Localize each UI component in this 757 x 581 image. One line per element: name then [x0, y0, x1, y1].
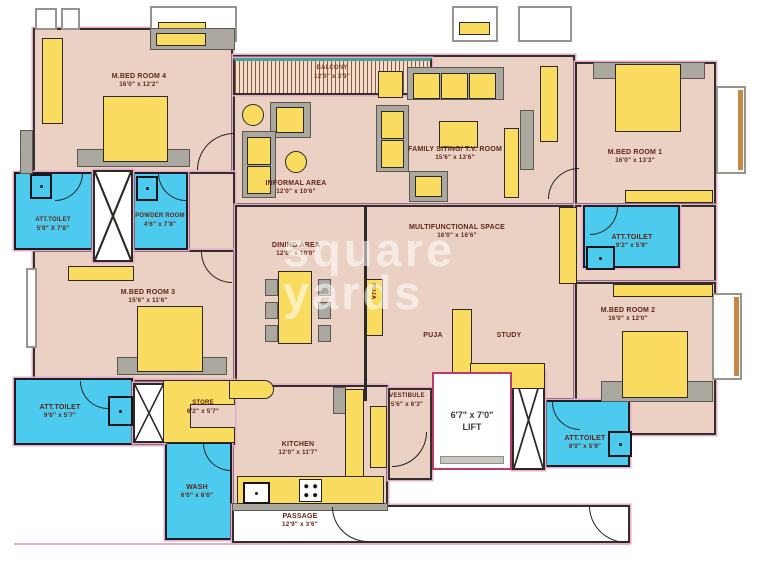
- lift-sill: [440, 456, 504, 464]
- corridor-wardrobe-b: [504, 128, 519, 198]
- dining-chair: [265, 279, 278, 296]
- family-sofa-seat: [441, 73, 468, 99]
- label-puja: PUJA: [413, 331, 453, 340]
- label-att-toilet-topleft: ATT.TOILET5'9" X 7'8": [13, 217, 93, 233]
- bed1-bed: [615, 64, 681, 132]
- label-att-toilet-bottomleft: ATT.TOILET9'6" x 5'7": [20, 403, 100, 420]
- dining-chair: [318, 279, 331, 296]
- bed3-bed: [137, 306, 203, 372]
- label-wash: WASH6'0" x 8'6": [157, 483, 237, 500]
- family-sofa-seat: [469, 73, 496, 99]
- label-att-toilet-right: ATT.TOILET9'2" x 5'9": [592, 233, 672, 250]
- dining-table: [278, 271, 312, 344]
- dining-chair: [318, 325, 331, 342]
- bed2-closet: [613, 284, 713, 297]
- coffee-table: [439, 121, 478, 148]
- label-vestibule: VESTIBULE5'6" x 6'3": [372, 393, 442, 409]
- window-sill-bed4: [20, 130, 33, 174]
- corridor-cabinet-gray: [520, 110, 534, 170]
- bed3-closet: [68, 266, 134, 281]
- label-bed3: M.BED ROOM 315'6" x 11'6": [98, 288, 198, 305]
- duct-shaft-store: [133, 383, 165, 443]
- lift-dims: 6'7" x 7'0": [451, 409, 494, 421]
- top-vent-box-1: [35, 8, 57, 30]
- dining-chair: [318, 302, 331, 319]
- label-study: STUDY: [487, 331, 531, 340]
- informal-round-table: [242, 104, 264, 126]
- label-multifunctional-space: MULTIFUNCTIONAL SPACE16'0" x 16'6": [387, 223, 527, 240]
- sink-att-toilet-bottomleft: [108, 396, 133, 426]
- informal-round-table: [285, 151, 307, 173]
- vestibule-cabinet: [370, 406, 387, 468]
- label-powder-room: POWDER ROOM4'6" x 7'8": [120, 213, 200, 229]
- informal-armchair-seat: [276, 107, 304, 133]
- label-store: STORE6'2" x 5'7": [171, 400, 235, 416]
- family-armchair-topleft: [378, 71, 403, 98]
- top-duct-shelf-4: [459, 22, 490, 35]
- multi-wardrobe: [559, 207, 577, 284]
- label-balcony: BALCONY12'0" x 3'9": [292, 65, 372, 81]
- label-dining-area: DINING AREA12'0" x 10'0": [246, 241, 346, 258]
- label-family-room: FAMILY SITING/ T.V. ROOM15'6" x 13'6": [390, 145, 520, 162]
- label-passage: PASSAGE12'9" x 3'6": [250, 512, 350, 529]
- family-armchair-seat: [415, 176, 442, 197]
- label-bed1: M.BED ROOM 116'0" x 13'3": [585, 148, 685, 165]
- window-bay-bed2-frame: [734, 297, 739, 376]
- bed4-closet: [156, 33, 206, 46]
- label-bed4: M.BED ROOM 416'0" x 12'2": [89, 72, 189, 89]
- top-vent-box-2: [61, 8, 80, 30]
- bed1-dresser: [625, 190, 713, 203]
- kitchen-sink: [243, 482, 270, 504]
- lift-label: LIFT: [463, 421, 482, 433]
- label-kitchen: KITCHEN12'0" x 11'7": [248, 440, 348, 457]
- dining-chair: [265, 302, 278, 319]
- label-informal-area: INFORMAL AREA12'0" x 10'6": [246, 179, 346, 196]
- kitchen-counter-right: [345, 389, 364, 477]
- bed4-wardrobe: [42, 38, 63, 124]
- counter-rounded-end: [229, 380, 274, 399]
- label-puja-cabinet: PUJA: [370, 283, 376, 300]
- bed2-bed: [622, 331, 688, 398]
- window-bed3: [26, 268, 37, 348]
- window-bay-bed1-frame: [738, 90, 743, 170]
- informal-sofa-seat: [247, 137, 271, 165]
- label-bed2: M.BED ROOM 216'0" x 12'0": [578, 306, 678, 323]
- family-sofa-seat: [413, 73, 440, 99]
- stove-burners: [299, 479, 322, 502]
- bed4-bed: [103, 96, 168, 162]
- att-toilet-topleft-floor: [14, 172, 93, 250]
- label-att-toilet-bottomright: ATT.TOILET8'0" x 5'9": [545, 434, 625, 451]
- plan-bottom-outline: [14, 543, 630, 545]
- family-side-sofa-seat: [381, 111, 404, 139]
- top-duct-box-5: [518, 6, 572, 42]
- sink-powder-room: [136, 176, 158, 201]
- sink-att-toilet-topleft: [30, 174, 52, 199]
- dining-chair: [265, 325, 278, 342]
- wall-dining-multi: [364, 205, 367, 401]
- floor-plan: 6'7" x 7'0" LIFT: [0, 0, 757, 581]
- corridor-wardrobe-a: [540, 66, 558, 142]
